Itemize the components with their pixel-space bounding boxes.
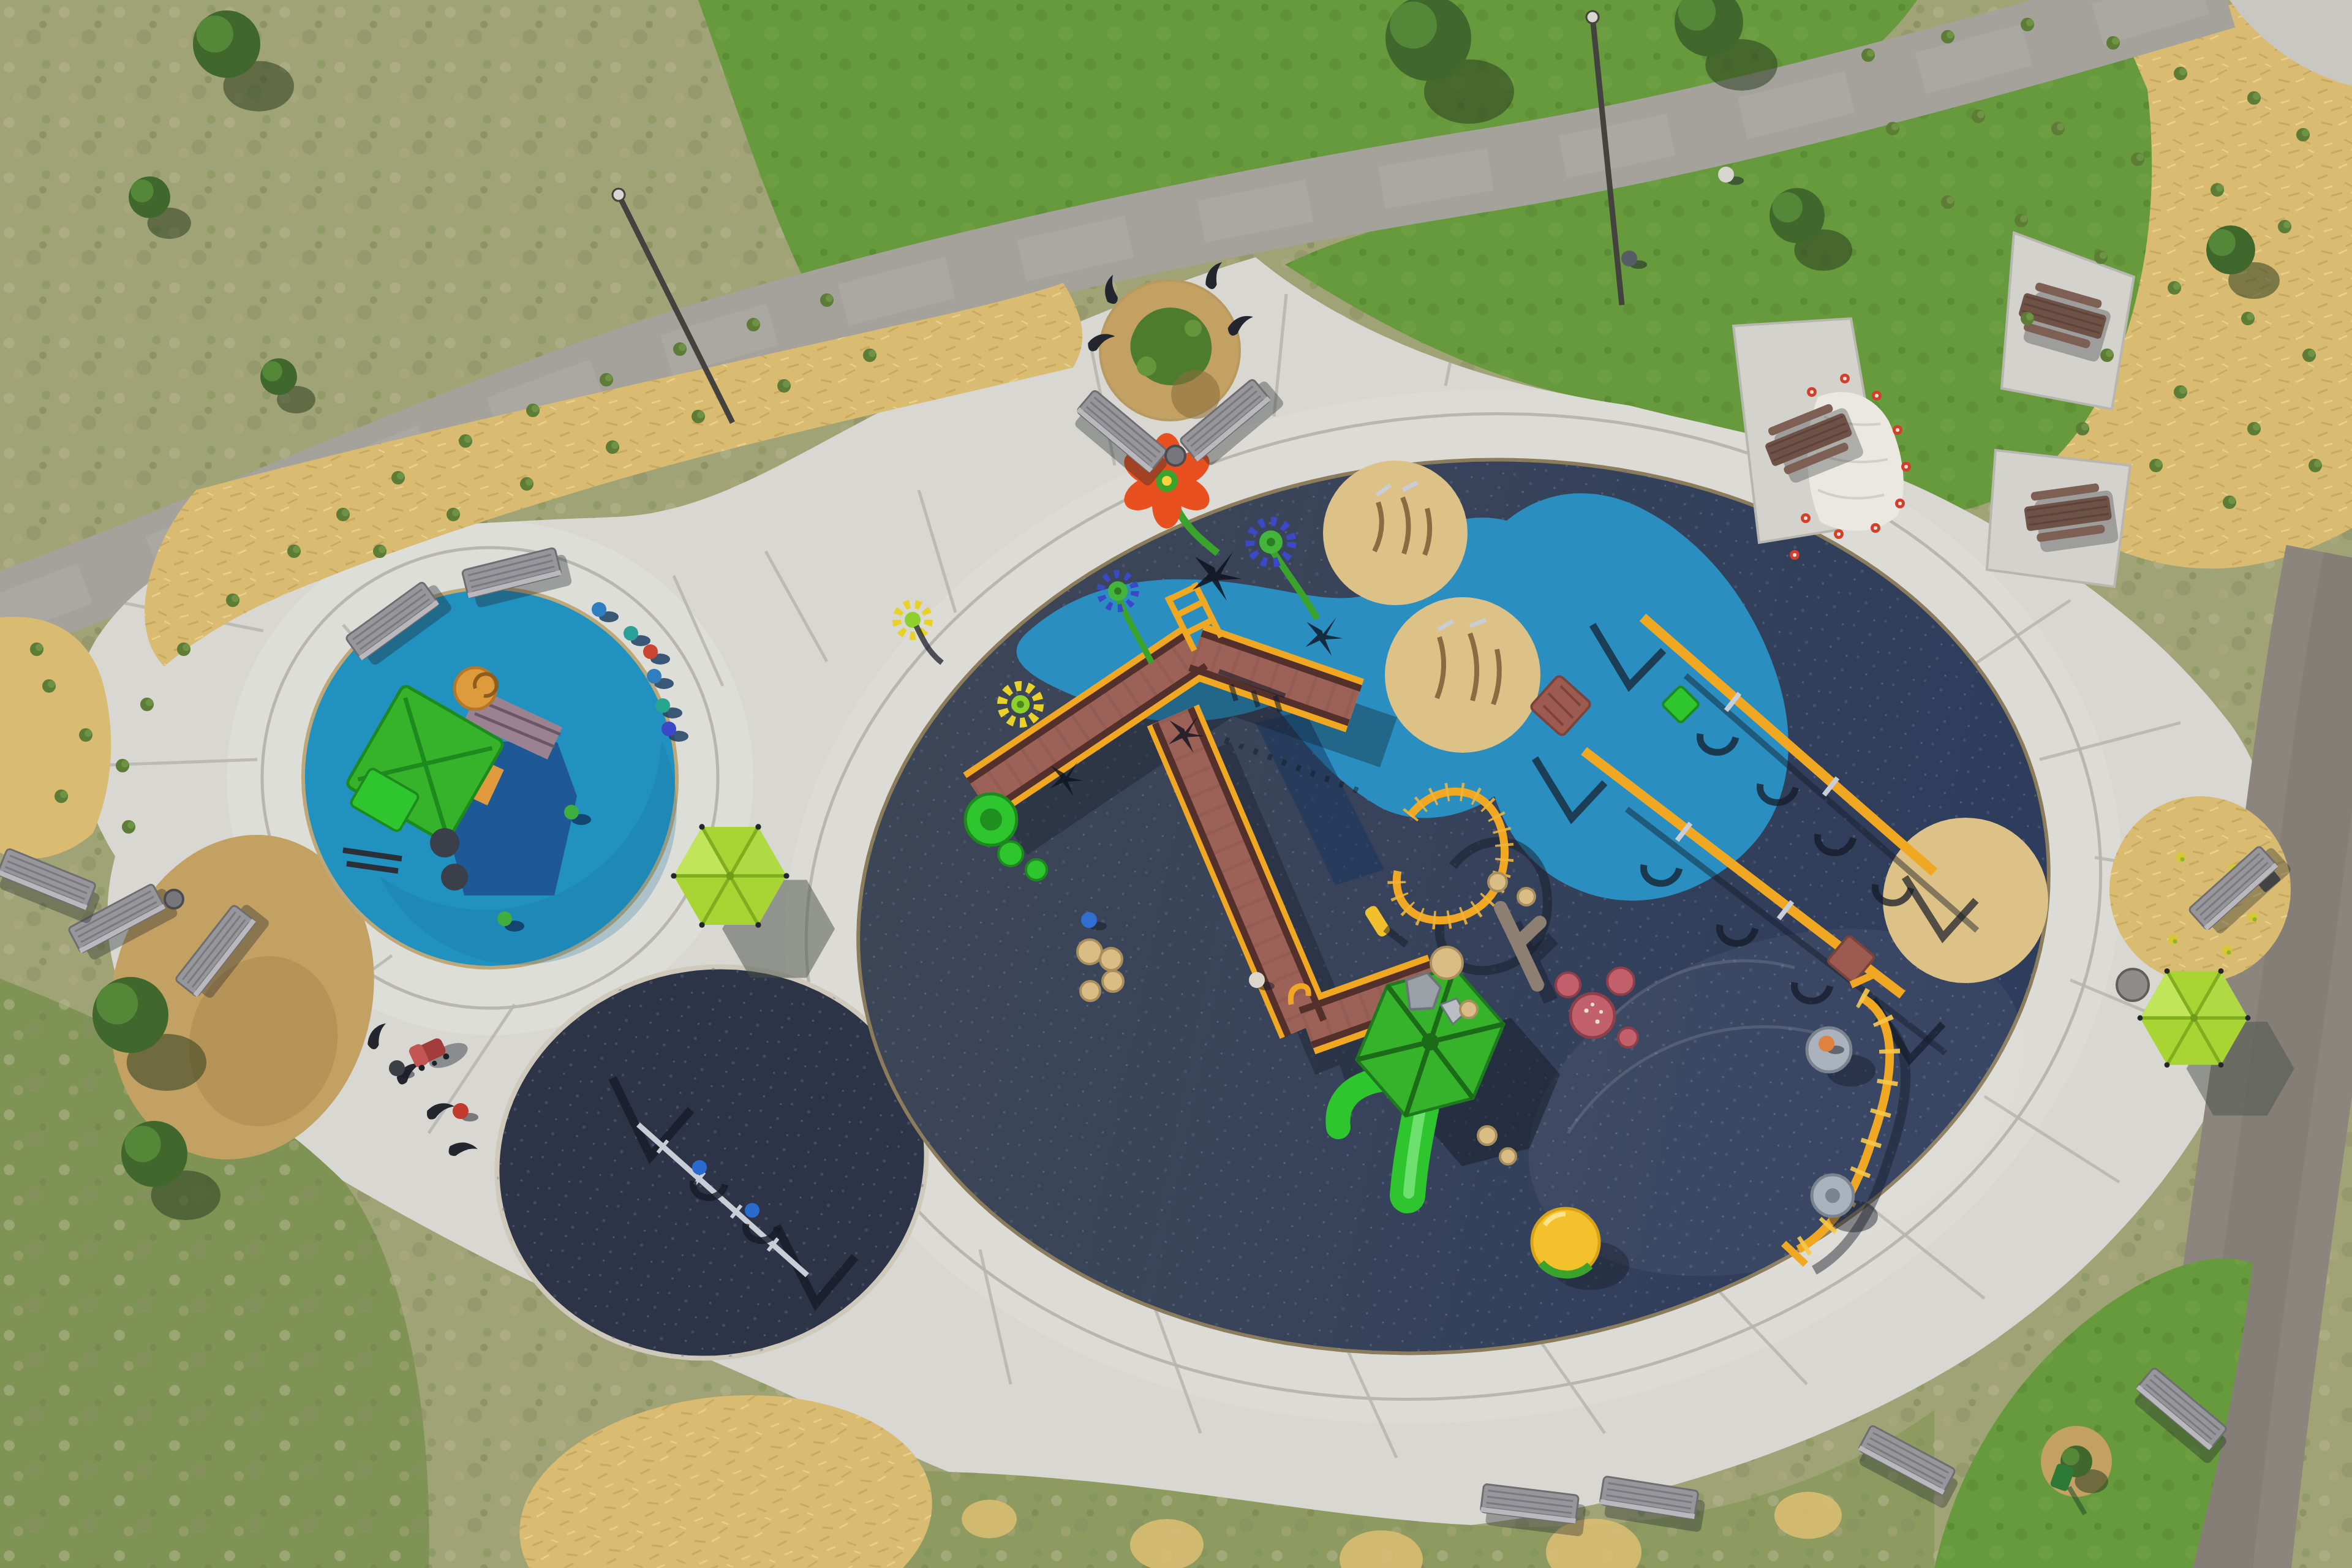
shrub bbox=[2302, 349, 2316, 362]
splash-pod bbox=[441, 864, 468, 891]
shrub bbox=[177, 643, 190, 656]
traffic-cone bbox=[1872, 391, 1882, 401]
shrub bbox=[2247, 91, 2261, 105]
yellow-flower-plant bbox=[2222, 946, 2232, 956]
stepping-stump bbox=[1080, 981, 1100, 1001]
yellow-flower-plant bbox=[2248, 913, 2258, 922]
shrub bbox=[2131, 153, 2144, 166]
disc-hub bbox=[1825, 1188, 1840, 1203]
shrub bbox=[2094, 251, 2108, 264]
shrub bbox=[2076, 422, 2089, 435]
shrub bbox=[747, 318, 760, 331]
tree-canopy-highlight bbox=[130, 179, 153, 202]
shrub bbox=[391, 471, 405, 484]
shrub bbox=[336, 508, 350, 521]
baby-swing-seat bbox=[692, 1160, 707, 1175]
shrub bbox=[1886, 122, 1899, 135]
tree-canopy-highlight bbox=[197, 15, 234, 53]
shrub bbox=[673, 342, 687, 356]
person bbox=[1249, 972, 1265, 988]
flower-center bbox=[2180, 858, 2185, 862]
stepping-stump bbox=[1102, 971, 1123, 992]
shrub bbox=[122, 820, 135, 834]
spray-toy bbox=[564, 805, 579, 820]
tree-canopy-highlight bbox=[124, 1126, 160, 1162]
shrub bbox=[287, 545, 301, 558]
shrub bbox=[459, 434, 472, 448]
lamp-head bbox=[1586, 11, 1599, 23]
shrub bbox=[373, 545, 386, 558]
hex-hub bbox=[1422, 1033, 1439, 1050]
shrub bbox=[116, 759, 129, 772]
shrub bbox=[520, 477, 533, 491]
traffic-cone bbox=[1895, 499, 1905, 508]
stepping-stump bbox=[1518, 888, 1535, 905]
tree-canopy-highlight bbox=[2062, 1448, 2080, 1466]
planter-shrub bbox=[1185, 320, 1202, 337]
shrub bbox=[2021, 18, 2034, 31]
spray-toy bbox=[661, 722, 676, 736]
shrub bbox=[79, 728, 92, 742]
spray-toy bbox=[592, 602, 606, 617]
shrub bbox=[2296, 128, 2310, 141]
spiral-slide-core bbox=[980, 809, 1002, 831]
stepping-stump bbox=[1460, 1001, 1477, 1018]
shrub bbox=[2247, 422, 2261, 435]
shrub bbox=[226, 594, 239, 607]
person bbox=[1718, 167, 1734, 183]
trash-can bbox=[165, 890, 183, 908]
aerial-playground-photo bbox=[0, 0, 2352, 1568]
shrub bbox=[2100, 349, 2114, 362]
sign-disc bbox=[2117, 969, 2149, 1001]
flower-center bbox=[2253, 918, 2257, 922]
spray-toy bbox=[655, 698, 670, 713]
yellow-flower-plant bbox=[2168, 935, 2178, 944]
traffic-cone bbox=[1834, 529, 1844, 539]
shrub bbox=[2223, 496, 2236, 509]
green-stool bbox=[998, 842, 1023, 866]
tree-canopy-highlight bbox=[96, 982, 138, 1024]
shrub bbox=[2106, 36, 2120, 50]
shrub bbox=[55, 790, 68, 803]
shrub bbox=[2241, 312, 2255, 325]
shrub bbox=[1861, 48, 1875, 62]
traffic-cone bbox=[1893, 425, 1902, 435]
shrub bbox=[606, 440, 619, 454]
shrub bbox=[2168, 281, 2181, 295]
shrub bbox=[2278, 220, 2291, 233]
shrub bbox=[2015, 214, 2028, 227]
stepping-stump bbox=[1431, 947, 1463, 979]
baby-swing-seat bbox=[745, 1203, 759, 1218]
shrub bbox=[2211, 183, 2224, 197]
shrub bbox=[1941, 30, 1954, 43]
tan-circle-climber-2 bbox=[1385, 597, 1540, 753]
flower-center bbox=[2227, 951, 2231, 955]
shrub bbox=[526, 404, 540, 417]
traffic-cone bbox=[1901, 462, 1911, 472]
flower-center bbox=[2173, 940, 2177, 944]
tan-circle-climber-1 bbox=[1323, 461, 1468, 605]
spray-toy bbox=[497, 911, 512, 926]
shrub bbox=[777, 379, 791, 393]
traffic-cone bbox=[1790, 550, 1800, 560]
stepping-stump bbox=[1500, 1148, 1516, 1164]
green-stool bbox=[1026, 859, 1047, 880]
shrub bbox=[42, 679, 56, 693]
planter-shrub bbox=[1137, 356, 1156, 376]
shrub bbox=[2021, 312, 2034, 325]
shrub bbox=[820, 293, 834, 307]
traffic-cone bbox=[1871, 523, 1880, 533]
person bbox=[453, 1103, 469, 1119]
traffic-cone bbox=[1807, 387, 1817, 397]
person bbox=[1621, 251, 1637, 266]
shrub bbox=[140, 698, 154, 711]
spray-toy bbox=[624, 626, 638, 641]
shrub bbox=[863, 349, 876, 362]
shrub bbox=[2309, 459, 2322, 472]
stepping-stump bbox=[1488, 873, 1507, 891]
spray-toy bbox=[643, 644, 658, 659]
tree-canopy-highlight bbox=[2209, 229, 2236, 256]
shrub bbox=[2174, 385, 2187, 399]
traffic-cone bbox=[1801, 513, 1811, 523]
shrub bbox=[2174, 67, 2187, 80]
person bbox=[1819, 1036, 1834, 1052]
person bbox=[389, 1060, 405, 1076]
shrub bbox=[2149, 459, 2163, 472]
mulch-spot bbox=[962, 1500, 1017, 1539]
lamp-head bbox=[612, 189, 625, 201]
shrub bbox=[30, 643, 43, 656]
traffic-cone bbox=[1840, 374, 1850, 383]
person bbox=[1081, 912, 1097, 928]
shrub bbox=[692, 410, 705, 423]
stepping-stump bbox=[1478, 1126, 1496, 1145]
spray-toy bbox=[647, 669, 661, 684]
stepping-stump bbox=[1100, 948, 1122, 970]
yellow-flower-plant bbox=[2176, 853, 2185, 862]
tree-canopy-highlight bbox=[1390, 2, 1437, 49]
shrub bbox=[1972, 110, 1985, 123]
trash-can bbox=[1166, 446, 1185, 466]
tree-canopy-highlight bbox=[262, 361, 282, 382]
shrub bbox=[2051, 122, 2065, 135]
shrub bbox=[447, 508, 460, 521]
shrub bbox=[1941, 195, 1954, 209]
stepping-stump bbox=[1077, 940, 1102, 964]
mulch-spot bbox=[1774, 1492, 1842, 1539]
tree-canopy-highlight bbox=[1773, 192, 1803, 223]
shrub bbox=[600, 373, 613, 386]
splash-pod bbox=[430, 828, 459, 858]
